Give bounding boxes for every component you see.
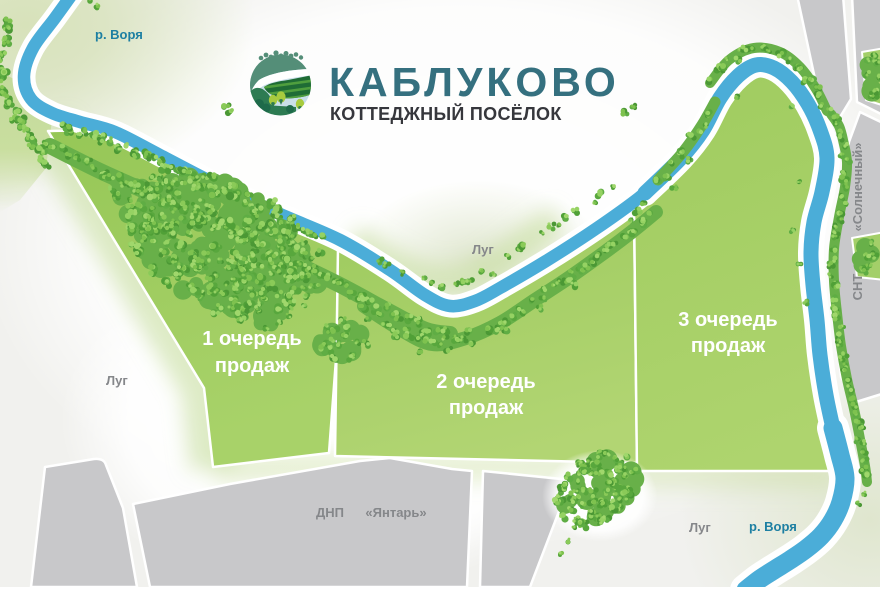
svg-text:продаж: продаж	[691, 335, 766, 357]
svg-text:продаж: продаж	[215, 355, 290, 377]
svg-text:«Янтарь»: «Янтарь»	[365, 505, 426, 520]
svg-text:Луг: Луг	[472, 242, 494, 257]
svg-text:СНТ: СНТ	[850, 274, 865, 301]
svg-text:р. Воря: р. Воря	[95, 27, 143, 42]
svg-text:3 очередь: 3 очередь	[678, 309, 777, 331]
svg-text:ДНП: ДНП	[316, 505, 344, 520]
svg-text:Луг: Луг	[689, 520, 711, 535]
svg-text:Луг: Луг	[106, 373, 128, 388]
svg-text:продаж: продаж	[449, 397, 524, 419]
svg-text:2 очередь: 2 очередь	[436, 371, 535, 393]
svg-text:«Солнечный»: «Солнечный»	[850, 143, 865, 232]
svg-text:р. Воря: р. Воря	[749, 519, 797, 534]
svg-text:КОТТЕДЖНЫЙ ПОСЁЛОК: КОТТЕДЖНЫЙ ПОСЁЛОК	[330, 103, 562, 124]
svg-text:КАБЛУКОВО: КАБЛУКОВО	[329, 59, 620, 105]
svg-text:1 очередь: 1 очередь	[202, 328, 301, 350]
